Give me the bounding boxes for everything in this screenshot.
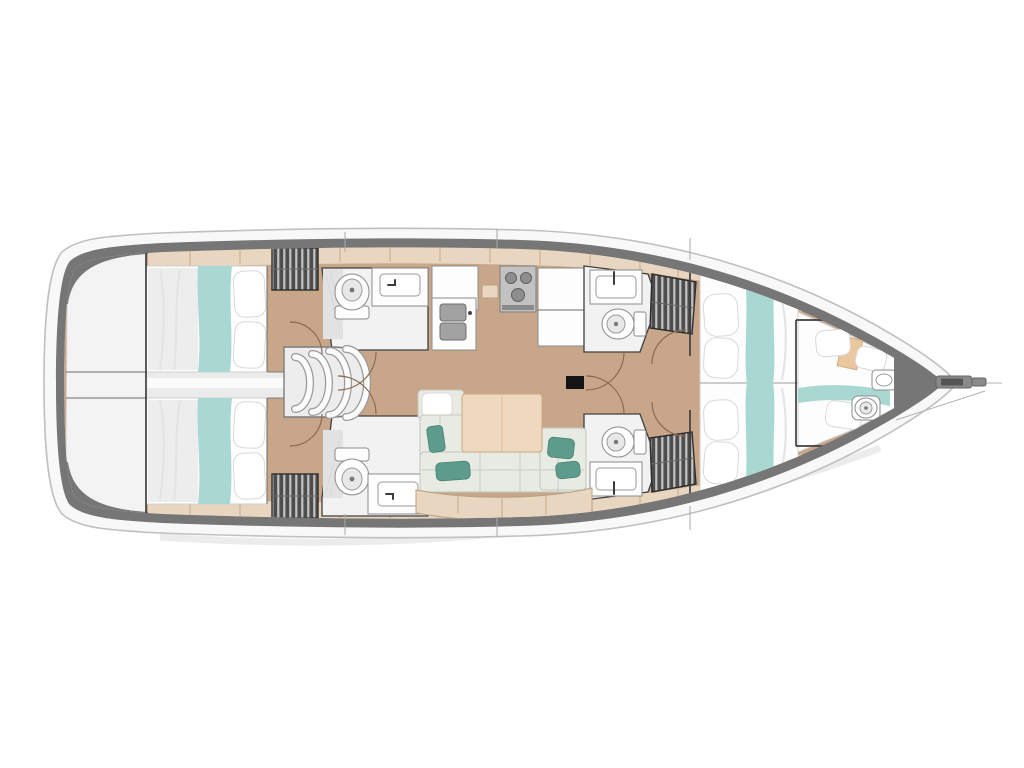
accent-cushion xyxy=(435,461,470,481)
divider-highlight xyxy=(146,378,286,388)
mast-step xyxy=(566,376,584,389)
aft-head-starboard xyxy=(322,416,428,516)
pillow xyxy=(703,337,739,379)
berth-foot-shade xyxy=(148,400,198,502)
sink xyxy=(596,468,636,490)
fridge-counter xyxy=(538,268,584,346)
pillow xyxy=(703,441,740,485)
floor-plan-canvas xyxy=(0,0,1024,768)
sink xyxy=(378,482,418,506)
bow-fitting xyxy=(972,378,986,386)
galley-sink xyxy=(440,323,466,340)
toilet-tank xyxy=(634,312,646,336)
berth-foot-shade xyxy=(148,268,198,370)
stern-platform xyxy=(66,250,146,516)
pillow xyxy=(233,321,266,369)
stove-knobs xyxy=(502,305,534,310)
sink xyxy=(380,274,420,296)
berth-runner xyxy=(745,270,775,496)
settee-back xyxy=(540,428,586,490)
pillow xyxy=(422,393,452,417)
hanging-locker xyxy=(650,432,696,492)
toilet-tank xyxy=(634,430,646,454)
pillow xyxy=(233,452,266,500)
galley-sink xyxy=(440,304,466,321)
pillow xyxy=(233,270,266,318)
pillow xyxy=(703,399,739,441)
accent-cushion xyxy=(555,461,581,479)
hanging-locker xyxy=(650,274,696,334)
burner-icon xyxy=(506,273,517,284)
companionway-steps xyxy=(284,347,367,417)
sink xyxy=(596,276,636,298)
accent-cushion xyxy=(547,437,575,460)
berth-runner xyxy=(198,398,232,504)
anchor-roller-slot xyxy=(941,379,963,386)
pillow xyxy=(815,329,851,358)
berth-runner xyxy=(198,266,232,372)
burner-icon xyxy=(521,273,532,284)
pillow xyxy=(233,401,266,449)
sink xyxy=(876,374,892,386)
pillow xyxy=(703,293,740,337)
interior xyxy=(60,245,942,520)
yacht-floor-plan xyxy=(0,0,1024,768)
counter-insert xyxy=(482,285,498,298)
burner-icon xyxy=(512,289,525,302)
aft-cabin-port xyxy=(146,266,267,372)
aft-head-port xyxy=(322,268,428,350)
accent-cushion xyxy=(426,425,445,453)
aft-cabin-starboard xyxy=(146,398,267,504)
